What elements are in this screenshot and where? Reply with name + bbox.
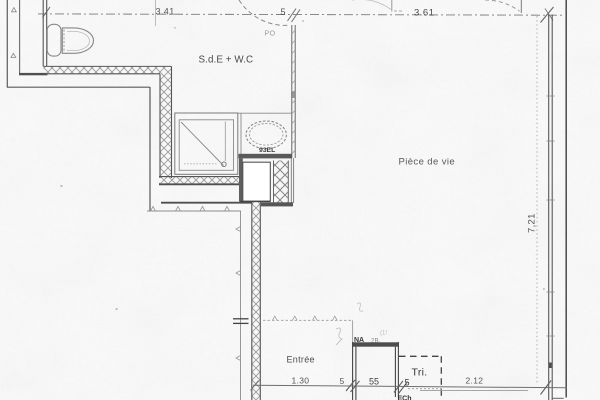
svg-text:(1!: (1! bbox=[380, 331, 387, 337]
svg-text:2.12: 2.12 bbox=[466, 375, 484, 385]
svg-text:5: 5 bbox=[405, 377, 410, 387]
svg-text:3.41: 3.41 bbox=[156, 7, 175, 17]
svg-text:93EL: 93EL bbox=[259, 147, 275, 154]
svg-text:7,21: 7,21 bbox=[527, 213, 538, 233]
svg-text:Entrée: Entrée bbox=[287, 355, 315, 365]
svg-text:NA: NA bbox=[354, 337, 364, 344]
svg-text:Tri.: Tri. bbox=[412, 367, 428, 379]
svg-text:Pièce de vie: Pièce de vie bbox=[399, 157, 456, 168]
svg-text:PO: PO bbox=[265, 31, 276, 38]
svg-text:1.30: 1.30 bbox=[292, 376, 310, 386]
svg-text:ECh: ECh bbox=[398, 396, 412, 400]
svg-text:3.61: 3.61 bbox=[414, 7, 435, 18]
svg-text:5: 5 bbox=[340, 376, 345, 386]
svg-text:5: 5 bbox=[281, 7, 286, 17]
svg-text:S.d.E + W.C: S.d.E + W.C bbox=[199, 55, 254, 66]
svg-text:2B.: 2B. bbox=[371, 337, 381, 344]
svg-text:55: 55 bbox=[369, 377, 379, 387]
